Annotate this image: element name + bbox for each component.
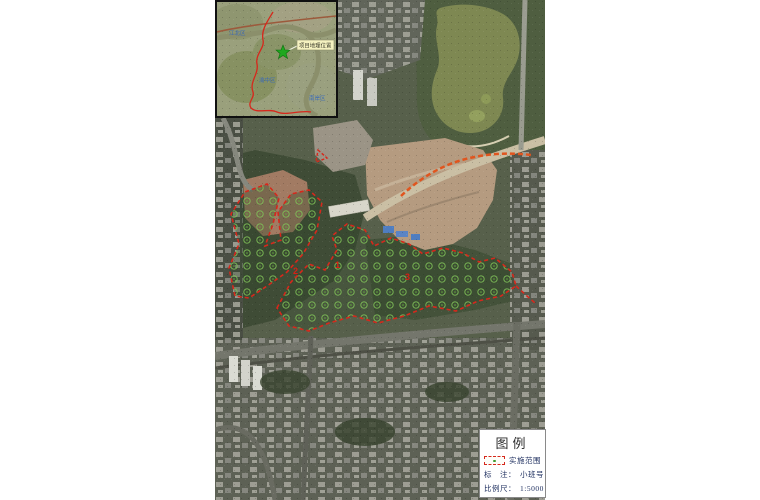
annotation-value: 小班号 bbox=[520, 469, 544, 480]
annotation-label: 标 注： bbox=[484, 469, 516, 480]
compartment-number: 1 bbox=[335, 260, 340, 270]
compartment-number: 3 bbox=[405, 272, 410, 282]
implementation-scope-label: 实施范围 bbox=[509, 455, 541, 466]
map-sheet: 2 1 3 bbox=[0, 0, 760, 500]
compartment-number: 2 bbox=[293, 266, 298, 276]
legend-scale-row: 比例尺： 1:5000 bbox=[484, 483, 541, 494]
place-label: 南岸区 bbox=[309, 94, 326, 102]
legend-scope-row: 实施范围 bbox=[484, 455, 541, 466]
legend-annotation-row: 标 注： 小班号 bbox=[484, 469, 541, 480]
scale-value: 1:5000 bbox=[520, 484, 544, 493]
implementation-scope-swatch bbox=[484, 456, 505, 465]
place-label: 江北区 bbox=[229, 29, 246, 37]
legend-title: 图例 bbox=[484, 433, 541, 452]
project-callout-label: 项目地理位置 bbox=[299, 41, 332, 49]
legend-box: 图例 实施范围 标 注： 小班号 比例尺： 1:5000 bbox=[479, 429, 546, 498]
scale-label: 比例尺： bbox=[484, 483, 516, 494]
inset-svg: 项目地理位置 江北区 渝中区 南岸区 bbox=[217, 2, 336, 116]
locator-inset-map: 项目地理位置 江北区 渝中区 南岸区 bbox=[215, 0, 338, 118]
place-label: 渝中区 bbox=[259, 76, 276, 84]
